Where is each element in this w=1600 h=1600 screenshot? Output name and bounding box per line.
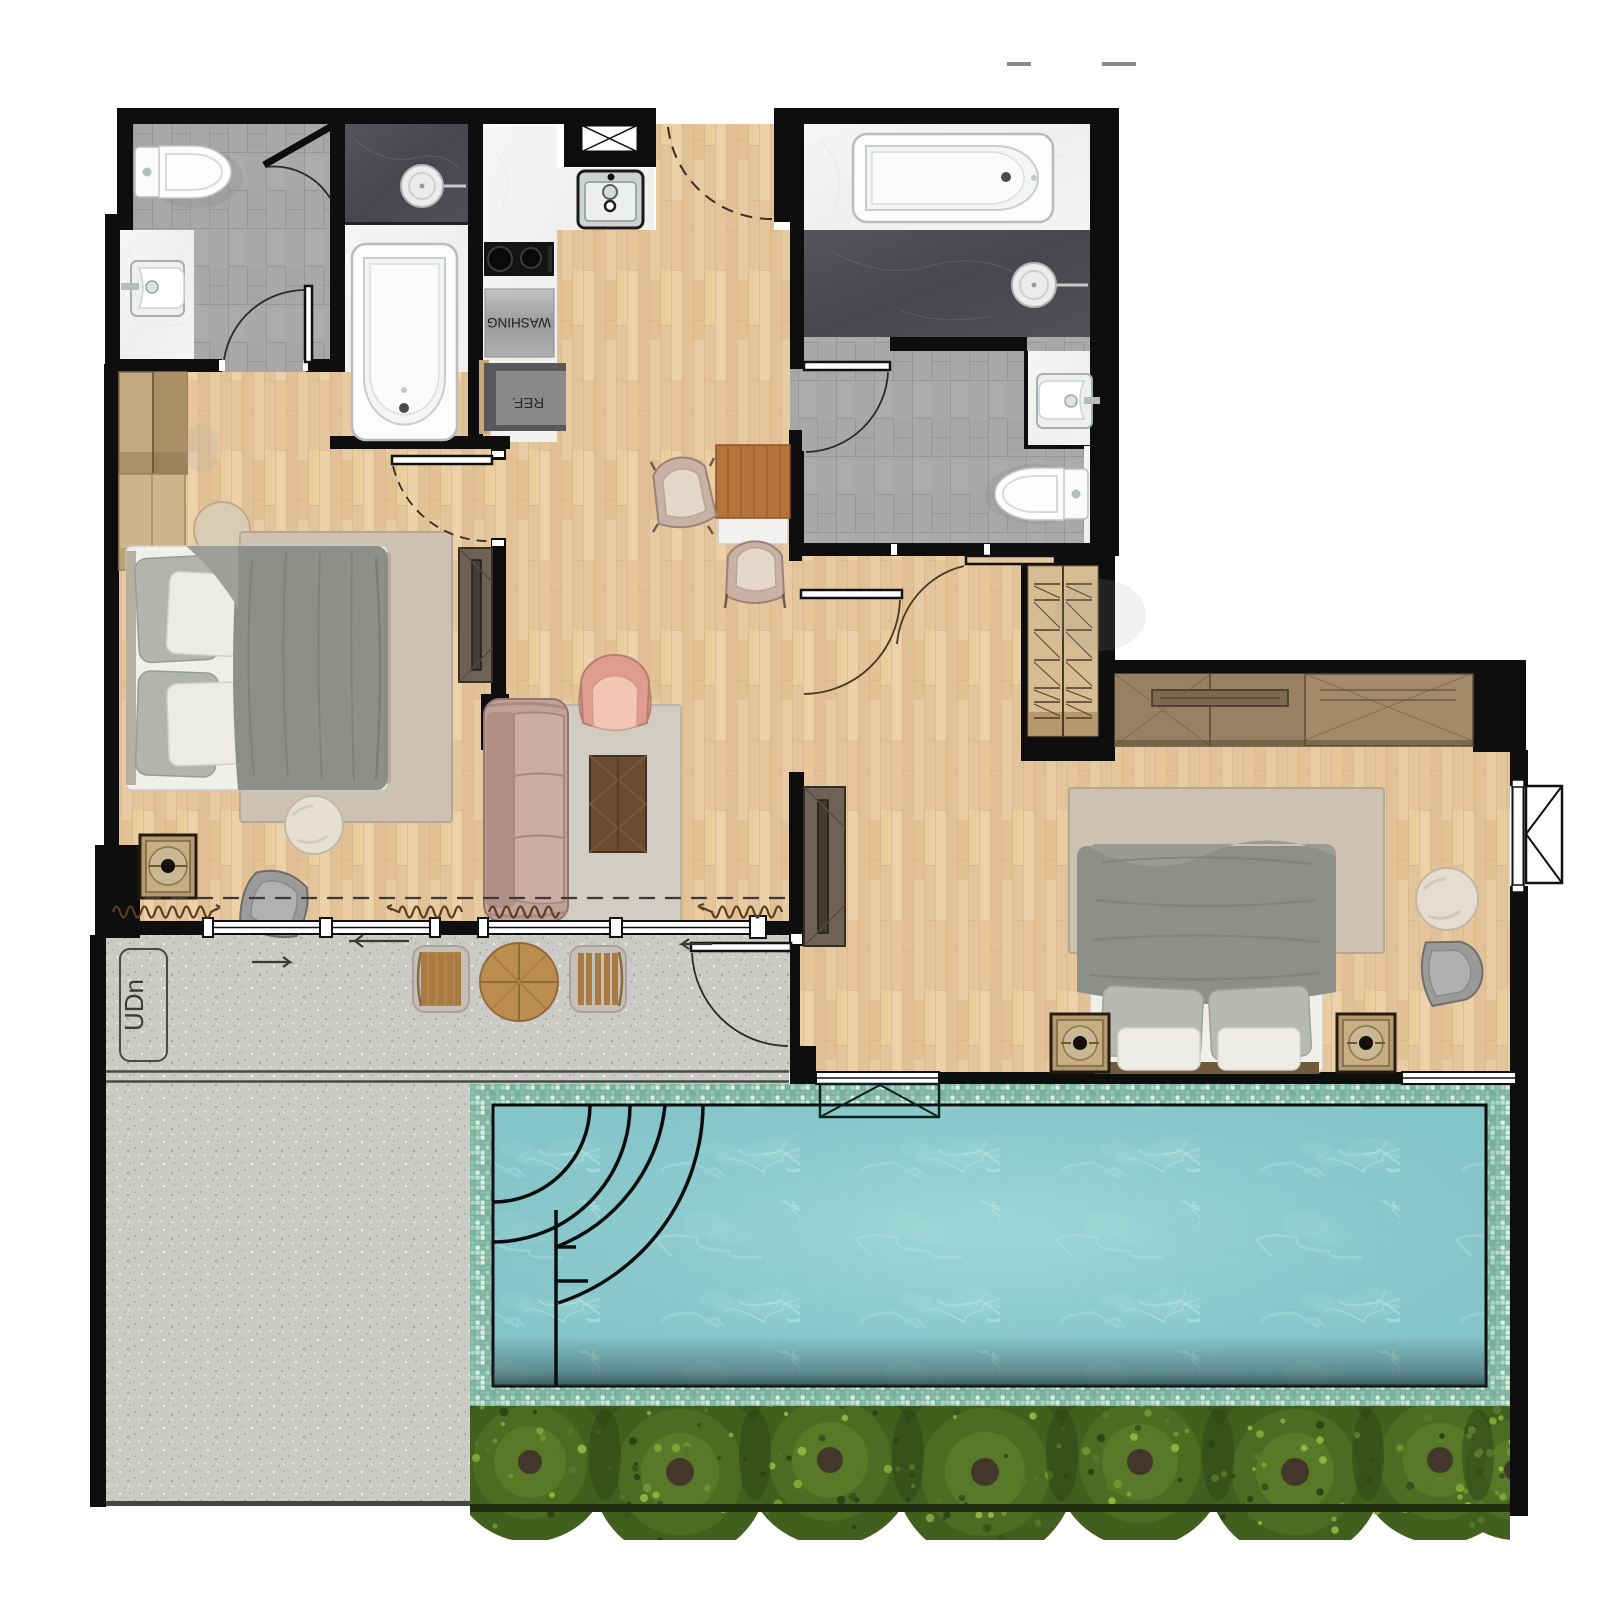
svg-text:REF.: REF.: [512, 394, 545, 411]
svg-text:UDn: UDn: [119, 979, 149, 1031]
svg-text:WASHING: WASHING: [487, 315, 551, 330]
